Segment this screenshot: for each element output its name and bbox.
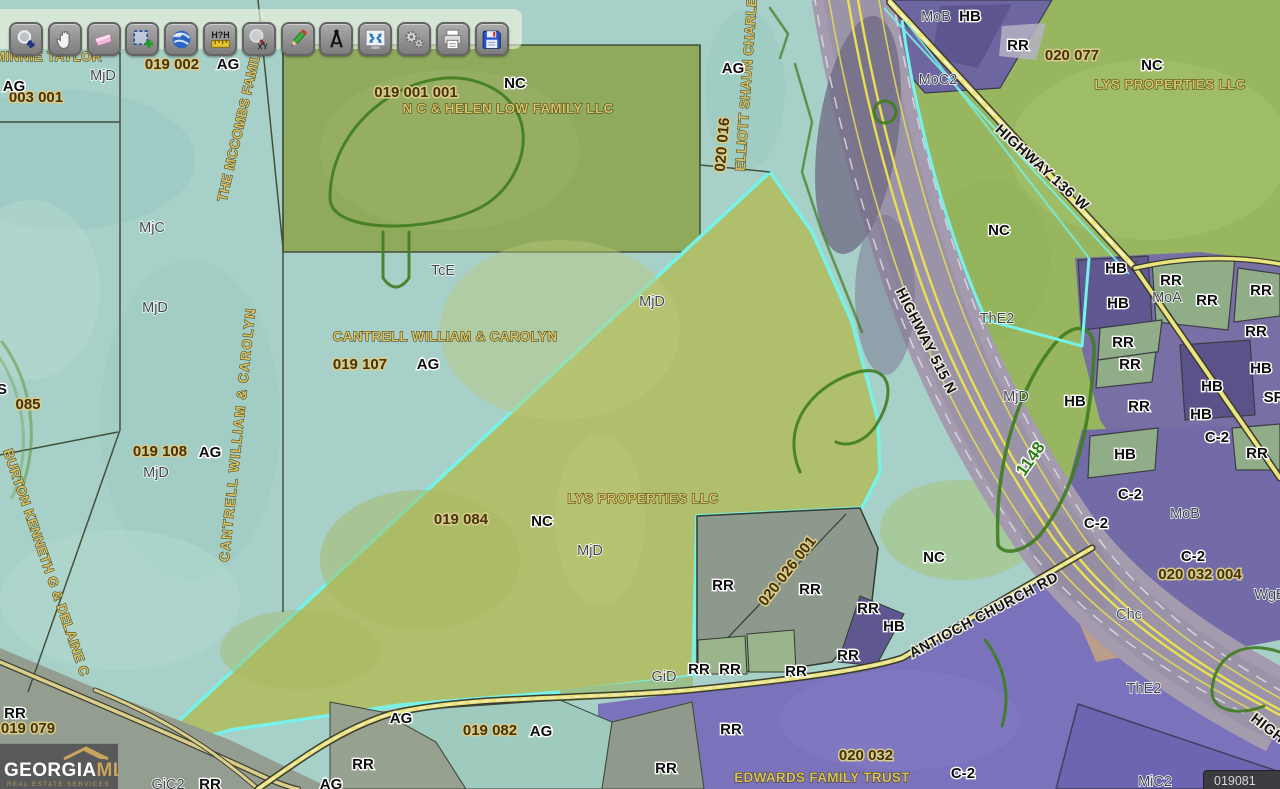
map-label-zone: C-2 [1181, 548, 1205, 565]
compass-icon [324, 27, 349, 52]
map-label-pnum: 019 082 [463, 722, 517, 739]
map-label-zone: RR [1196, 292, 1218, 309]
bearing-button[interactable] [319, 22, 353, 56]
map-label-zone: AG [722, 60, 745, 77]
map-label-soil: TcE [431, 263, 456, 279]
map-label-soil: Chc [1116, 607, 1142, 623]
map-label-soil: MjD [639, 294, 665, 310]
map-label-zone: HB [1105, 260, 1127, 277]
parcel-map-canvas[interactable]: MINNIE TAYLORTHE MCCOMBS FAMILY L PN C &… [0, 0, 1280, 789]
printer-icon [440, 27, 465, 52]
map-label-soil: ThE2 [1127, 681, 1162, 697]
parcel-id-overlay: 019081 [1203, 770, 1280, 789]
extent-arrows-icon [363, 27, 388, 52]
map-label-soil: MoB [1170, 506, 1200, 522]
logo-tagline: REAL ESTATE SERVICES [7, 781, 110, 788]
map-label-pnum: 020 077 [1045, 47, 1099, 64]
draw-button[interactable] [281, 22, 315, 56]
map-label-zone: AG [217, 56, 240, 73]
map-label-zone: RR [857, 600, 879, 617]
map-label-zone: HB [1250, 360, 1272, 377]
map-label-zone: RR [720, 721, 742, 738]
map-label-soil: MjD [142, 300, 168, 316]
map-label-zone: NC [988, 222, 1010, 239]
map-label-zone: RR [1160, 272, 1182, 289]
map-label-soil: MjD [1003, 389, 1029, 405]
zoom-to-xy-button[interactable]: XY [242, 22, 276, 56]
svg-text:XY: XY [258, 42, 269, 51]
map-label-owner: CANTRELL WILLIAM & CAROLYN [333, 329, 558, 344]
map-label-soil: GiD [652, 669, 677, 685]
map-label-zone: HB [883, 618, 905, 635]
map-label-zone: RR [688, 661, 710, 678]
map-label-zone: HB [1190, 406, 1212, 423]
map-label-soil: GiC2 [151, 777, 184, 789]
map-label-zone: AG [199, 444, 222, 461]
map-label-soil: MoA [1152, 290, 1182, 306]
measure-distance-button[interactable]: H?H [203, 22, 237, 56]
save-button[interactable] [475, 22, 509, 56]
map-label-zone: RR [785, 663, 807, 680]
map-label-zone: AG [530, 723, 553, 740]
map-label-zone: NC [504, 75, 526, 92]
map-label-zone: AG [390, 710, 413, 727]
map-label-zone: AG [3, 78, 26, 95]
pencil-icon [285, 27, 310, 52]
map-label-soil: MjD [143, 465, 169, 481]
gears-icon [402, 27, 427, 52]
map-label-zone: HB [1064, 393, 1086, 410]
map-label-owner: EDWARDS FAMILY TRUST [734, 770, 910, 785]
pan-button[interactable] [48, 22, 82, 56]
save-disk-icon [479, 27, 504, 52]
map-label-soil: MiC2 [1138, 774, 1172, 789]
map-label-zone: RR [1245, 323, 1267, 340]
eraser-icon [91, 27, 116, 52]
map-label-zone: RR [799, 581, 821, 598]
map-label-pnum: 019 084 [434, 511, 489, 528]
gis-parcel-map-app: MINNIE TAYLORTHE MCCOMBS FAMILY L PN C &… [0, 0, 1280, 789]
map-label-zone: RR [655, 760, 677, 777]
map-label-soil: MoC2 [919, 72, 958, 88]
print-button[interactable] [436, 22, 470, 56]
measure-ruler-icon: H?H [208, 27, 233, 52]
map-label-zone: RR [1128, 398, 1150, 415]
map-label-pnum: 085 [15, 396, 40, 413]
map-label-zone: C-2 [1084, 515, 1108, 532]
map-label-zone: NC [923, 549, 945, 566]
map-label-zone: C-2 [1118, 486, 1142, 503]
zoom-extent-button[interactable] [358, 22, 392, 56]
map-label-soil: ThE2 [980, 311, 1015, 327]
map-label-zone: C-2 [951, 765, 975, 782]
map-label-zone: RR [1007, 37, 1029, 54]
select-parcel-button[interactable] [125, 22, 159, 56]
map-label-zone: RR [1250, 282, 1272, 299]
map-label-zone: RR [4, 705, 26, 722]
map-label-pnum: 019 002 [145, 56, 199, 73]
map-label-zone: NC [1141, 57, 1163, 74]
map-label-zone: HB [959, 8, 981, 25]
map-label-zone: RR [1119, 356, 1141, 373]
map-label-zone: RR [1246, 445, 1268, 462]
map-label-soil: WgB [1254, 587, 1280, 603]
earth-view-button[interactable] [164, 22, 198, 56]
map-label-owner: LYS PROPERTIES LLC [1094, 77, 1245, 92]
logo-brand-secondary: MLS [97, 760, 118, 781]
map-label-pnum: 019 001 001 [374, 84, 457, 101]
toolbar: H?HXY [0, 9, 522, 49]
map-label-pnum: 019 108 [133, 443, 187, 460]
logo-brand: GEORGIAMLS [4, 760, 118, 782]
zoom-in-button[interactable] [9, 22, 43, 56]
pan-hand-icon [52, 27, 77, 52]
map-label-zone: HB [1201, 378, 1223, 395]
map-label-zone: RR [712, 577, 734, 594]
map-label-soil: MoB [921, 9, 951, 25]
georgia-mls-logo: GEORGIAMLS REAL ESTATE SERVICES [0, 743, 118, 789]
map-label-zone: AG [320, 776, 343, 789]
map-label-pnum: 020 032 004 [1158, 566, 1242, 583]
map-label-soil: MjD [90, 68, 116, 84]
globe-icon [169, 27, 194, 52]
map-label-zone: HB [1107, 295, 1129, 312]
map-label-zone: S [0, 381, 7, 398]
zoom-xy-icon: XY [246, 27, 271, 52]
map-label-zone: RR [199, 776, 221, 789]
map-label-soil: MjD [577, 543, 603, 559]
map-label-zone: HB [1114, 446, 1136, 463]
eraser-button[interactable] [87, 22, 121, 56]
map-label-owner: N C & HELEN LOW FAMILY LLC [402, 101, 613, 116]
svg-text:H?H: H?H [211, 29, 229, 39]
map-label-zone: RR [352, 756, 374, 773]
logo-roof-icon [62, 746, 110, 760]
map-label-owner: LYS PROPERTIES LLC [567, 491, 718, 506]
map-label-pnum: 019 107 [333, 356, 387, 373]
map-label-zone: SR [1264, 389, 1280, 406]
map-label-zone: RR [837, 647, 859, 664]
map-label-soil: MjC [139, 220, 165, 236]
map-label-zone: RR [1112, 334, 1134, 351]
map-label-zone: NC [531, 513, 553, 530]
map-label-zone: C-2 [1205, 429, 1229, 446]
tools-button[interactable] [397, 22, 431, 56]
select-plus-icon [130, 27, 155, 52]
map-label-pnum: 020 032 [839, 747, 893, 764]
map-label-zone: RR [719, 661, 741, 678]
map-label-pnum: 019 079 [1, 720, 55, 737]
zoom-in-icon [14, 27, 39, 52]
map-label-zone: AG [417, 356, 440, 373]
logo-brand-primary: GEORGIA [4, 760, 97, 781]
